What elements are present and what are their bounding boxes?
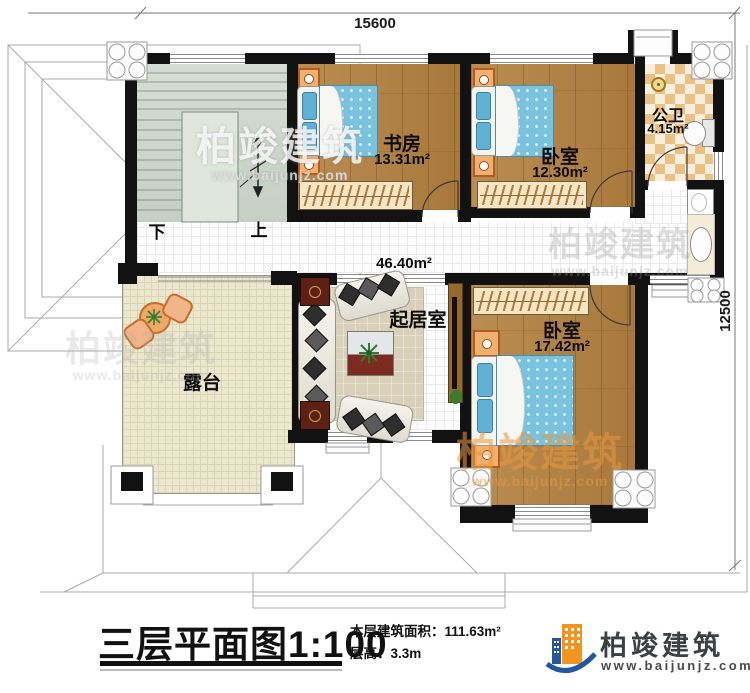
floor-info: 本层建筑面积：111.63m² 层高：3.3m <box>350 621 501 665</box>
drawing-title: 三层平面图1:100 <box>98 614 388 668</box>
floor-height-value: 3.3m <box>391 646 422 661</box>
detail-overlay <box>0 0 750 693</box>
room-area-bathroom: 4.15m² <box>634 121 702 136</box>
stair-treads <box>137 73 287 222</box>
room-label-terrace: 露台 <box>152 368 252 395</box>
room-label-living: 起居室 <box>368 305 468 332</box>
floor-area-row: 本层建筑面积：111.63m² <box>350 621 501 643</box>
terrace-pillar <box>121 472 143 491</box>
terrace-slider <box>158 277 271 281</box>
room-area-bedroom2: 17.42m² <box>512 338 612 355</box>
floor-plan-canvas: 15600 12500 书房 13.31m² 卧室 12.30m² 公卫 4.1… <box>0 0 750 693</box>
stair-label-up: 上 <box>245 216 273 241</box>
floor-height-row: 层高：3.3m <box>350 643 501 665</box>
brand-logo: 柏竣建筑 www.baijunjz.com <box>545 618 745 680</box>
dimension-width: 15600 <box>330 15 420 32</box>
room-area-bedroom1: 12.30m² <box>510 164 610 181</box>
drawing-title-text: 三层平面图 <box>98 624 288 665</box>
stair-label-down: 下 <box>143 218 171 243</box>
room-area-living: 46.40m² <box>354 255 454 272</box>
title-underline <box>100 661 342 666</box>
title-underline-shadow <box>100 669 342 671</box>
brand-logo-icon <box>545 620 597 678</box>
floor-area-value: 111.63m² <box>445 624 501 639</box>
room-area-study: 13.31m² <box>352 151 452 168</box>
floor-area-label: 本层建筑面积： <box>350 624 445 639</box>
dimension-height: 12500 <box>717 283 733 339</box>
stair-direction-arrow <box>240 136 266 196</box>
terrace-pillar <box>271 472 293 491</box>
brand-website: www.baijunjz.com <box>601 658 750 673</box>
floor-height-label: 层高： <box>350 646 391 661</box>
